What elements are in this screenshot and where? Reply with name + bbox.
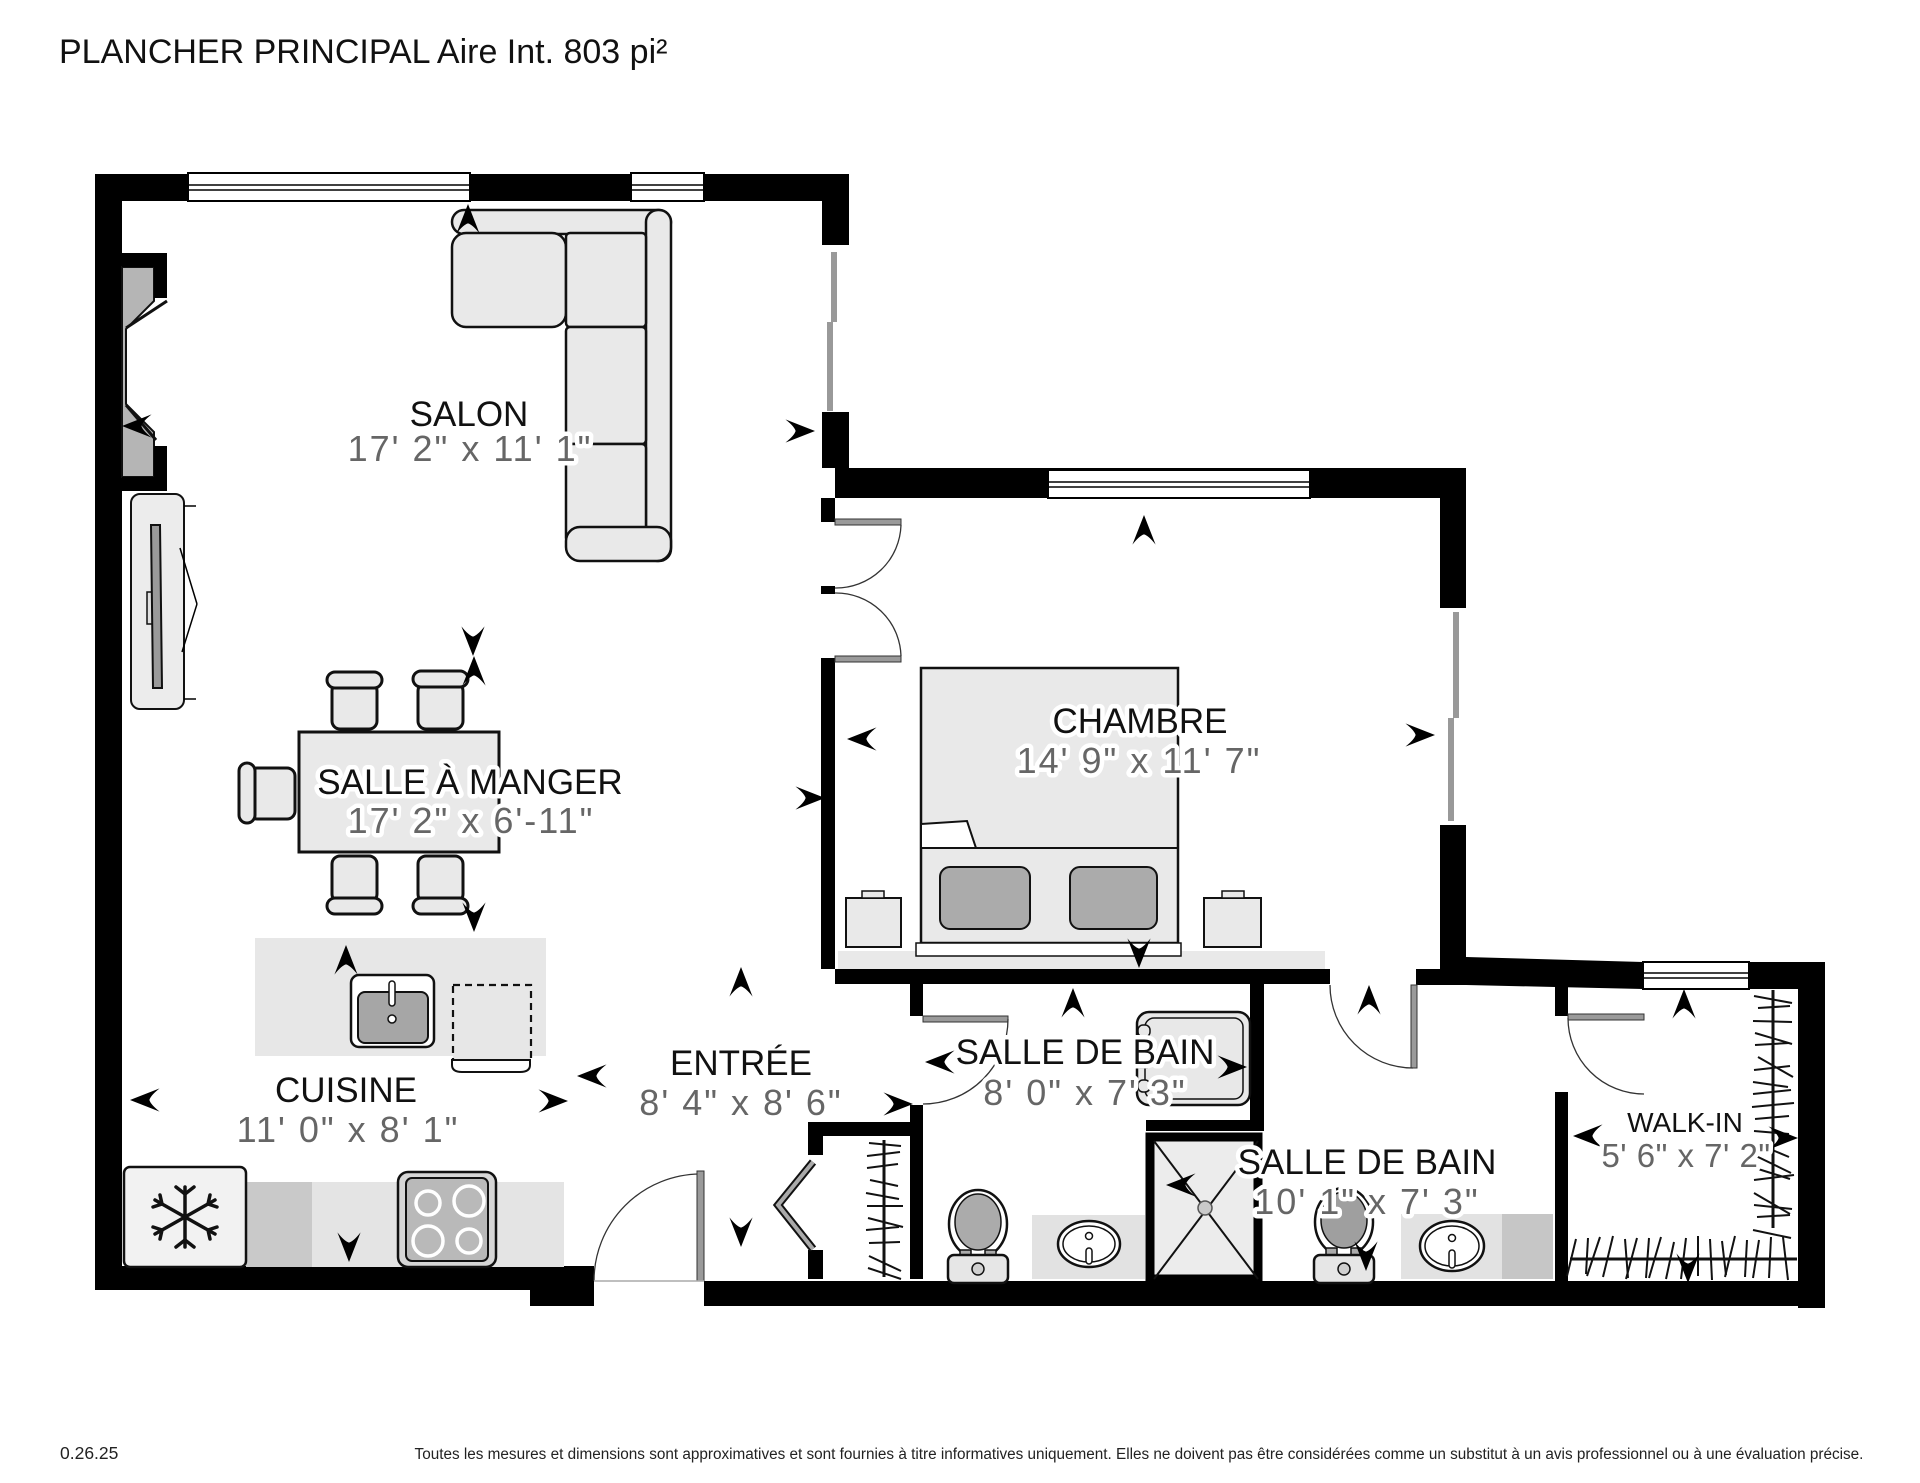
svg-text:CUISINE: CUISINE (275, 1071, 417, 1110)
svg-text:ENTRÉE: ENTRÉE (670, 1044, 812, 1083)
svg-text:14' 9" x 11' 7": 14' 9" x 11' 7" (1017, 740, 1262, 781)
svg-text:17' 2" x 11' 1": 17' 2" x 11' 1" (348, 428, 593, 469)
svg-text:0.26.25: 0.26.25 (60, 1443, 118, 1463)
svg-text:WALK-IN: WALK-IN (1627, 1107, 1743, 1138)
svg-text:17' 2" x 6'-11": 17' 2" x 6'-11" (348, 800, 595, 841)
svg-text:PLANCHER PRINCIPAL Aire Int. 8: PLANCHER PRINCIPAL Aire Int. 803 pi² (59, 33, 667, 71)
svg-text:10' 1" x 7' 3": 10' 1" x 7' 3" (1254, 1181, 1479, 1222)
svg-text:8' 4" x 8' 6": 8' 4" x 8' 6" (639, 1082, 842, 1123)
svg-text:Toutes les mesures et dimensio: Toutes les mesures et dimensions sont ap… (415, 1446, 1864, 1463)
svg-text:SALLE DE BAIN: SALLE DE BAIN (956, 1033, 1215, 1072)
svg-text:11' 0" x 8' 1": 11' 0" x 8' 1" (237, 1109, 460, 1150)
svg-text:SALLE À MANGER: SALLE À MANGER (317, 763, 622, 802)
svg-text:5' 6" x 7' 2": 5' 6" x 7' 2" (1601, 1137, 1770, 1174)
svg-text:CHAMBRE: CHAMBRE (1052, 702, 1227, 741)
svg-text:SALLE DE BAIN: SALLE DE BAIN (1238, 1143, 1497, 1182)
svg-text:8' 0" x 7' 3": 8' 0" x 7' 3" (983, 1072, 1186, 1113)
